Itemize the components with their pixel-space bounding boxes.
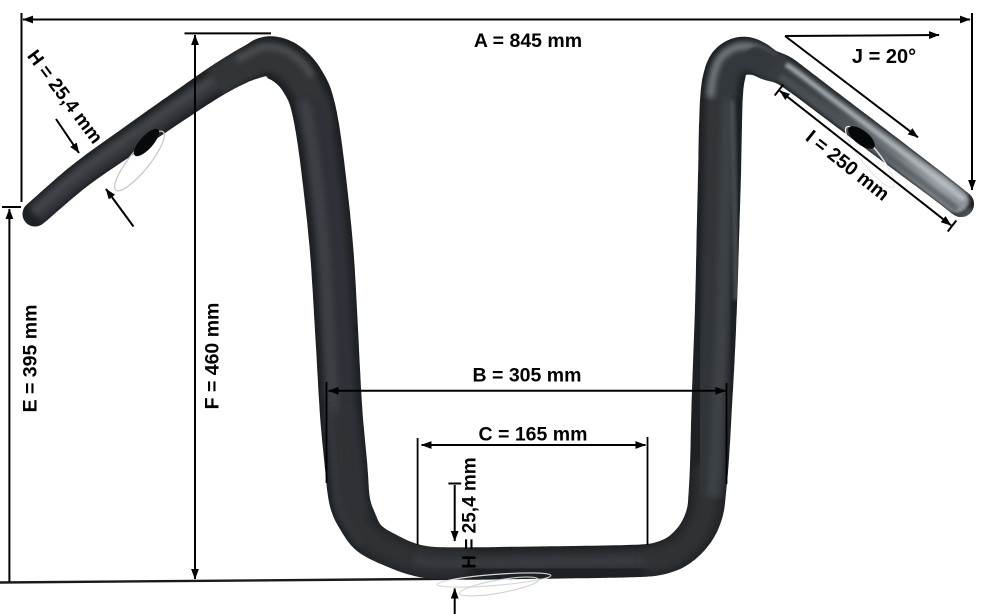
svg-text:C = 165 mm: C = 165 mm bbox=[479, 424, 588, 446]
svg-text:H = 25,4 mm: H = 25,4 mm bbox=[460, 457, 481, 568]
svg-text:J = 20°: J = 20° bbox=[852, 46, 916, 68]
svg-text:B = 305 mm: B = 305 mm bbox=[473, 365, 582, 387]
svg-text:E = 395 mm: E = 395 mm bbox=[20, 305, 42, 413]
svg-text:A = 845 mm: A = 845 mm bbox=[474, 30, 582, 52]
svg-text:F = 460 mm: F = 460 mm bbox=[202, 303, 224, 410]
